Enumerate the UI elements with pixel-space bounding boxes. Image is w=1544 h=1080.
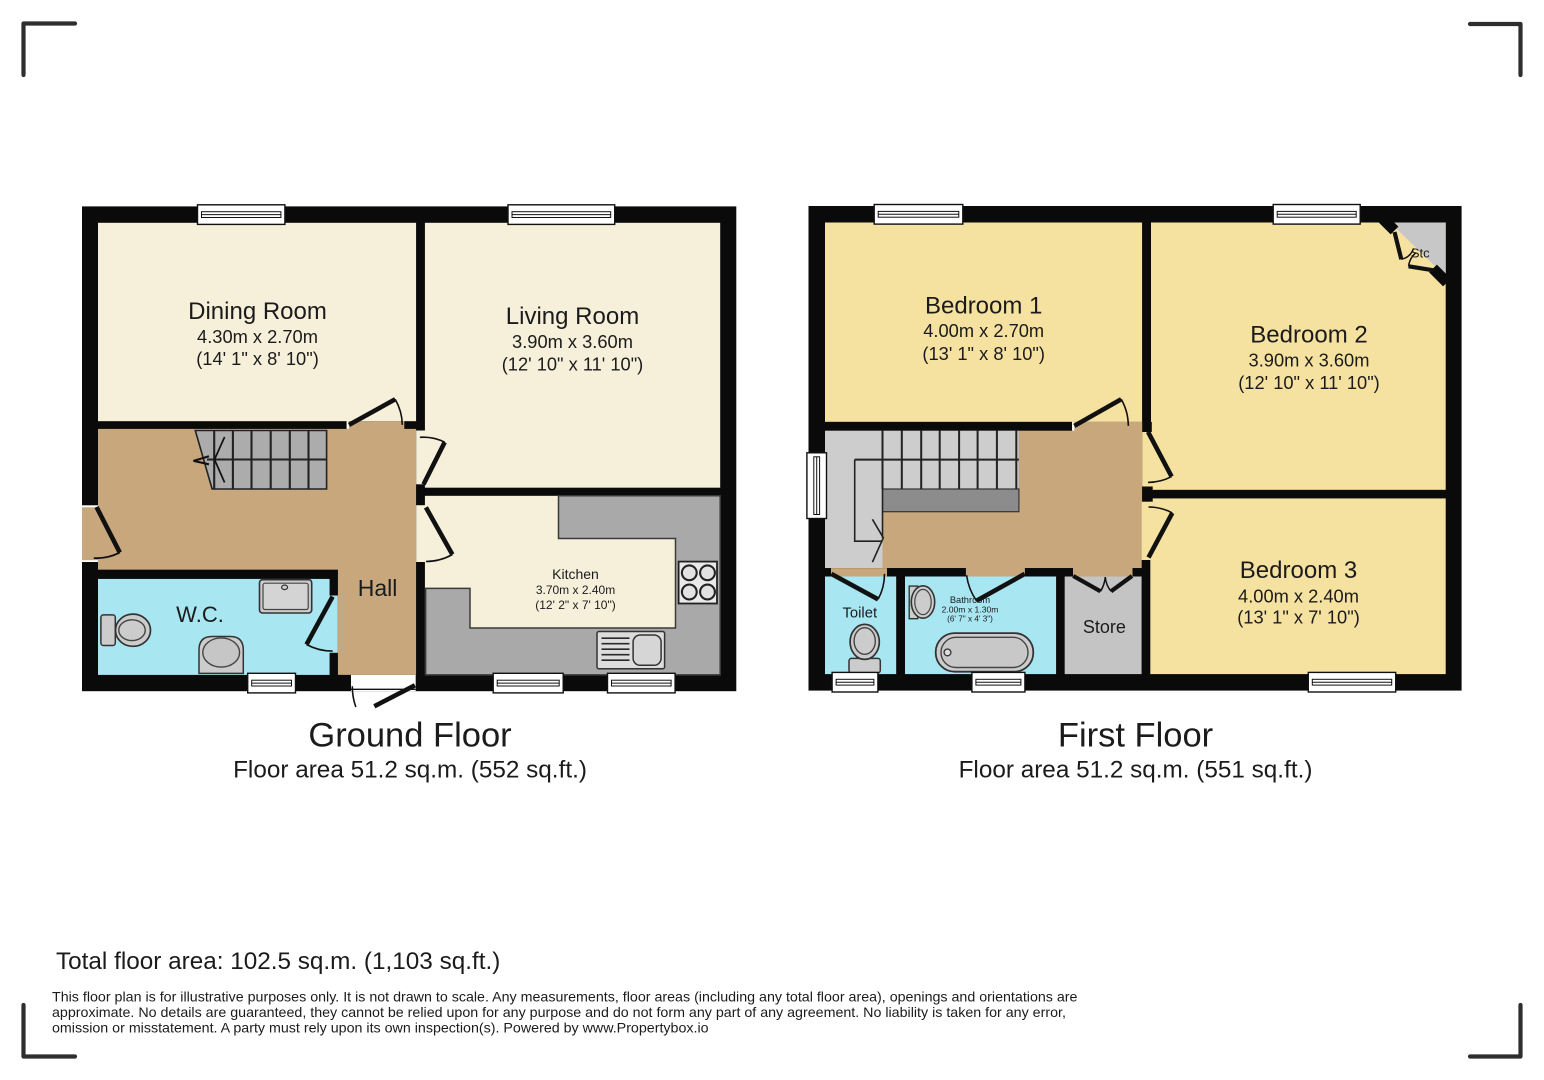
svg-text:Ground Floor: Ground Floor [308, 717, 511, 755]
svg-text:approximate. No details are gu: approximate. No details are guaranteed, … [52, 1005, 1066, 1021]
svg-text:(12' 10" x 11' 10"): (12' 10" x 11' 10") [502, 353, 644, 374]
svg-text:(13' 1" x 7' 10"): (13' 1" x 7' 10") [1237, 606, 1360, 627]
svg-text:Bedroom 1: Bedroom 1 [925, 293, 1042, 320]
svg-text:3.70m x 2.40m: 3.70m x 2.40m [536, 583, 615, 597]
svg-text:W.C.: W.C. [176, 602, 224, 627]
svg-text:3.90m x 3.60m: 3.90m x 3.60m [1249, 349, 1370, 370]
svg-text:Dining Room: Dining Room [188, 298, 327, 325]
svg-text:Bedroom 3: Bedroom 3 [1240, 557, 1357, 584]
svg-text:Toilet: Toilet [843, 605, 878, 621]
svg-text:Stc: Stc [1411, 245, 1430, 260]
svg-text:(12' 2" x 7' 10"): (12' 2" x 7' 10") [535, 598, 615, 612]
svg-text:(14' 1" x 8' 10"): (14' 1" x 8' 10") [196, 348, 319, 369]
svg-text:Floor area 51.2 sq.m. (551 sq.: Floor area 51.2 sq.m. (551 sq.ft.) [959, 757, 1313, 784]
svg-text:(12' 10" x 11' 10"): (12' 10" x 11' 10") [1238, 372, 1380, 393]
svg-text:Bedroom 2: Bedroom 2 [1250, 321, 1367, 348]
svg-text:Store: Store [1083, 617, 1126, 637]
svg-text:(6' 7" x 4' 3"): (6' 7" x 4' 3") [947, 614, 993, 623]
svg-text:Bathroom: Bathroom [950, 595, 991, 605]
svg-text:3.90m x 3.60m: 3.90m x 3.60m [512, 331, 633, 352]
svg-text:Kitchen: Kitchen [552, 566, 599, 582]
svg-text:First Floor: First Floor [1058, 717, 1213, 755]
svg-text:This floor plan is for illustr: This floor plan is for illustrative purp… [52, 990, 1078, 1006]
svg-text:Total floor area: 102.5 sq.m.: Total floor area: 102.5 sq.m. (1,103 sq.… [56, 948, 500, 975]
svg-text:(13' 1" x 8' 10"): (13' 1" x 8' 10") [922, 343, 1045, 364]
svg-text:4.30m x 2.70m: 4.30m x 2.70m [197, 326, 318, 347]
svg-text:Living Room: Living Room [506, 303, 639, 330]
svg-text:2.00m x 1.30m: 2.00m x 1.30m [942, 605, 999, 615]
svg-text:Hall: Hall [358, 575, 398, 601]
svg-text:Floor area 51.2 sq.m. (552 sq.: Floor area 51.2 sq.m. (552 sq.ft.) [233, 757, 587, 784]
svg-text:4.00m x 2.70m: 4.00m x 2.70m [923, 320, 1044, 341]
svg-text:4.00m x 2.40m: 4.00m x 2.40m [1238, 585, 1359, 606]
svg-text:omission or misstatement. A pa: omission or misstatement. A party must r… [52, 1020, 709, 1036]
